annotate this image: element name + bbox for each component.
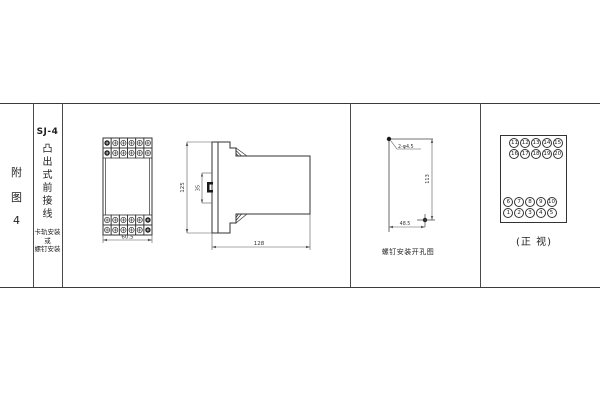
mounting-note: 卡轨安装 或 螺钉安装 — [35, 228, 61, 254]
height-dim-text: 125 — [180, 182, 186, 193]
type-char: 接 — [43, 195, 53, 208]
dim-arrow — [389, 226, 393, 228]
terminal-number: 15 — [553, 138, 563, 148]
terminal-number: 19 — [542, 149, 552, 159]
type-label-vertical: 凸 出 式 前 接 线 — [43, 143, 53, 221]
terminal-grid-top — [103, 138, 152, 158]
holes-label-text: 2-φ4.5 — [398, 144, 414, 150]
figure-index-char: 4 — [13, 214, 20, 227]
figure-index-label: 附 图 4 — [0, 164, 33, 227]
type-char: 凸 — [43, 143, 53, 156]
terminal-row: 11 12 13 14 15 — [509, 138, 563, 148]
front-view-drawing: 60.5 — [95, 130, 165, 255]
dim-arrow — [186, 142, 189, 146]
dim-arrow — [201, 200, 203, 204]
terminal-number: 5 — [547, 208, 557, 218]
model-label-column: SJ-4 凸 出 式 前 接 线 卡轨安装 或 螺钉安装 — [33, 127, 62, 254]
terminal-number: 11 — [509, 138, 519, 148]
dim-arrow — [103, 239, 107, 242]
terminal-number: 8 — [525, 197, 535, 207]
divider-3 — [350, 103, 351, 287]
dim-arrow — [148, 239, 152, 242]
terminal-number: 2 — [514, 208, 524, 218]
terminal-number: 10 — [547, 197, 557, 207]
front-plate — [212, 142, 218, 233]
width-dim-text: 60.5 — [121, 234, 134, 240]
terminal-number: 20 — [553, 149, 563, 159]
terminal-grid-bottom — [103, 215, 152, 235]
terminal-number: 9 — [536, 197, 546, 207]
terminal-row: 6 7 8 9 10 — [503, 197, 557, 207]
terminal-number: 12 — [520, 138, 530, 148]
figure-index-char: 附 — [11, 164, 22, 180]
type-char: 前 — [43, 182, 53, 195]
dim-arrow — [186, 229, 189, 233]
drill-diagram: 2-φ4.5 113 48.5 — [352, 123, 447, 241]
terminal-number: 16 — [509, 149, 519, 159]
depth-dim-text: 128 — [254, 241, 265, 247]
mounting-line: 或 — [35, 237, 61, 246]
type-char: 线 — [43, 208, 53, 221]
dim-arrow — [201, 173, 203, 177]
panel-caption: (正 视) — [495, 233, 573, 248]
dim-arrow — [306, 246, 310, 249]
dim-arrow — [421, 226, 425, 228]
mounting-line: 螺钉安装 — [35, 245, 61, 254]
terminal-row: 16 17 18 19 20 — [509, 149, 563, 159]
terminal-number: 17 — [520, 149, 530, 159]
terminal-number: 4 — [536, 208, 546, 218]
hatch-triangle-bottom — [236, 214, 247, 223]
horizontal-dim-text: 48.5 — [400, 221, 411, 227]
terminal-number: 14 — [542, 138, 552, 148]
terminal-row: 1 2 3 4 5 — [503, 208, 557, 218]
figure-index-char: 图 — [11, 189, 22, 205]
mounting-hole-top — [387, 137, 391, 141]
model-name: SJ-4 — [37, 127, 59, 137]
terminal-number: 7 — [514, 197, 524, 207]
dim-arrow — [431, 139, 433, 143]
mounting-line: 卡轨安装 — [35, 228, 61, 237]
type-char: 出 — [43, 156, 53, 169]
terminal-number: 3 — [525, 208, 535, 218]
dim-arrow — [212, 246, 216, 249]
dim-arrow — [431, 216, 433, 220]
case-profile — [218, 142, 310, 233]
type-char: 式 — [43, 169, 53, 182]
drill-diagram-caption: 螺钉安装开孔图 — [352, 247, 464, 257]
terminal-number: 6 — [503, 197, 513, 207]
hatch-triangle-top — [236, 148, 247, 156]
side-view-drawing: 125 35 128 — [175, 130, 320, 255]
divider-4 — [480, 103, 481, 287]
vertical-dim-text: 113 — [425, 174, 431, 184]
band-border-bottom — [0, 287, 600, 288]
rail-dim-text: 35 — [196, 185, 202, 191]
terminal-number: 1 — [503, 208, 513, 218]
terminal-number: 13 — [531, 138, 541, 148]
divider-2 — [62, 103, 63, 287]
figure-page: 附 图 4 SJ-4 凸 出 式 前 接 线 卡轨安装 或 螺钉安装 — [0, 0, 600, 400]
terminal-number: 18 — [531, 149, 541, 159]
band-border-top — [0, 103, 600, 104]
terminal-panel: 11 12 13 14 15 16 17 18 19 20 6 7 8 9 10… — [500, 135, 567, 223]
